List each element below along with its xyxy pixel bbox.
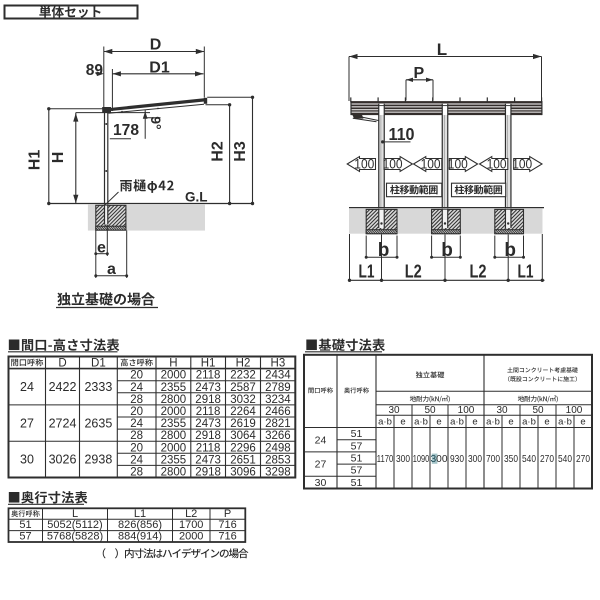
svg-text:2000: 2000 (161, 406, 187, 418)
svg-text:3026: 3026 (49, 453, 77, 467)
svg-text:2619: 2619 (230, 418, 256, 430)
svg-text:30: 30 (315, 477, 327, 489)
svg-text:e: e (436, 417, 441, 428)
svg-text:2800: 2800 (161, 430, 187, 442)
svg-text:2724: 2724 (49, 416, 77, 430)
svg-text:700: 700 (486, 453, 500, 465)
svg-text:28: 28 (130, 430, 143, 442)
svg-text:9°: 9° (148, 116, 164, 129)
svg-text:2473: 2473 (195, 418, 221, 430)
svg-text:350: 350 (504, 453, 518, 465)
svg-text:1090: 1090 (413, 453, 430, 465)
svg-text:P: P (413, 65, 424, 82)
svg-text:24: 24 (130, 382, 143, 394)
svg-text:2918: 2918 (195, 394, 221, 406)
svg-text:27: 27 (20, 416, 34, 430)
svg-text:3234: 3234 (265, 394, 291, 406)
svg-text:L: L (437, 40, 447, 59)
svg-text:100: 100 (383, 156, 403, 171)
svg-text:2800: 2800 (161, 466, 187, 478)
svg-text:57: 57 (351, 465, 363, 477)
svg-text:D: D (150, 36, 162, 53)
svg-text:2000: 2000 (161, 442, 187, 454)
svg-text:2000: 2000 (179, 530, 203, 542)
svg-text:a: a (107, 261, 116, 278)
svg-text:2355: 2355 (161, 454, 187, 466)
svg-text:24: 24 (315, 434, 327, 446)
svg-text:100: 100 (487, 156, 507, 171)
svg-text:20: 20 (130, 406, 143, 418)
svg-text:716: 716 (218, 519, 236, 531)
svg-text:51: 51 (351, 477, 363, 489)
svg-text:2587: 2587 (230, 382, 256, 394)
svg-text:2466: 2466 (265, 406, 291, 418)
svg-text:930: 930 (450, 453, 464, 465)
svg-text:3096: 3096 (230, 466, 256, 478)
svg-text:1170: 1170 (377, 453, 394, 465)
svg-text:2635: 2635 (84, 416, 112, 430)
svg-text:57: 57 (19, 530, 31, 542)
svg-text:2789: 2789 (265, 382, 291, 394)
svg-text:57: 57 (351, 440, 363, 452)
svg-text:2333: 2333 (84, 380, 112, 394)
svg-text:H3: H3 (232, 141, 249, 162)
svg-text:a·b: a·b (486, 417, 500, 428)
svg-text:3032: 3032 (230, 394, 256, 406)
svg-text:3298: 3298 (265, 466, 291, 478)
svg-text:L2: L2 (405, 262, 422, 282)
svg-text:H3: H3 (271, 357, 286, 369)
svg-text:1700: 1700 (179, 519, 203, 531)
svg-text:e: e (544, 417, 549, 428)
svg-text:D1: D1 (149, 60, 170, 77)
svg-text:2355: 2355 (161, 418, 187, 430)
svg-text:2651: 2651 (230, 454, 256, 466)
svg-text:2118: 2118 (196, 406, 221, 418)
svg-text:300: 300 (468, 453, 482, 465)
svg-text:H2: H2 (209, 141, 226, 162)
svg-text:50: 50 (424, 405, 436, 416)
svg-text:100: 100 (421, 156, 441, 171)
svg-text:2853: 2853 (265, 454, 291, 466)
svg-text:b: b (504, 240, 516, 261)
svg-text:30: 30 (20, 453, 34, 467)
svg-text:2498: 2498 (265, 442, 291, 454)
svg-text:2800: 2800 (161, 394, 187, 406)
svg-text:L2: L2 (470, 262, 487, 282)
svg-text:24: 24 (130, 454, 143, 466)
svg-text:2938: 2938 (84, 453, 112, 467)
svg-text:24: 24 (20, 380, 34, 394)
svg-text:51: 51 (351, 453, 363, 465)
svg-text:2918: 2918 (195, 466, 221, 478)
svg-text:27: 27 (315, 459, 327, 471)
svg-text:100: 100 (448, 156, 468, 171)
svg-text:e: e (472, 417, 477, 428)
svg-text:b: b (441, 240, 453, 261)
svg-text:100: 100 (458, 405, 475, 416)
svg-text:100: 100 (512, 156, 532, 171)
svg-text:28: 28 (130, 394, 143, 406)
svg-text:a·b: a·b (522, 417, 536, 428)
svg-text:L1: L1 (359, 262, 375, 282)
svg-text:884(914): 884(914) (118, 530, 162, 542)
svg-text:30: 30 (496, 405, 508, 416)
svg-text:100: 100 (354, 156, 374, 171)
svg-text:540: 540 (522, 453, 536, 465)
svg-text:5768(5828): 5768(5828) (47, 530, 103, 542)
svg-text:270: 270 (540, 453, 554, 465)
svg-text:110: 110 (389, 124, 415, 144)
svg-text:300: 300 (431, 453, 448, 465)
svg-text:51: 51 (19, 519, 31, 531)
svg-text:2118: 2118 (196, 370, 221, 382)
svg-text:2118: 2118 (196, 442, 221, 454)
svg-text:D1: D1 (91, 357, 106, 369)
svg-text:716: 716 (218, 530, 236, 542)
svg-text:L1: L1 (518, 262, 534, 282)
svg-text:826(856): 826(856) (118, 519, 162, 531)
svg-text:D: D (58, 357, 66, 369)
svg-text:a·b: a·b (414, 417, 428, 428)
svg-text:H: H (50, 152, 67, 164)
svg-text:G.L: G.L (185, 189, 208, 204)
svg-text:e: e (580, 417, 585, 428)
svg-text:a·b: a·b (378, 417, 392, 428)
svg-text:2232: 2232 (230, 370, 256, 382)
svg-text:89: 89 (86, 62, 104, 79)
svg-text:2821: 2821 (265, 418, 291, 430)
svg-text:a·b: a·b (450, 417, 464, 428)
svg-text:2473: 2473 (195, 382, 221, 394)
svg-text:2422: 2422 (49, 380, 77, 394)
svg-text:24: 24 (130, 418, 143, 430)
svg-text:51: 51 (351, 428, 363, 440)
svg-text:b: b (378, 240, 390, 261)
svg-text:5052(5112): 5052(5112) (47, 519, 102, 531)
svg-text:20: 20 (130, 370, 143, 382)
svg-text:20: 20 (130, 442, 143, 454)
svg-text:178: 178 (113, 122, 139, 139)
svg-text:28: 28 (130, 466, 143, 478)
svg-text:50: 50 (532, 405, 544, 416)
svg-text:e: e (508, 417, 513, 428)
svg-text:3266: 3266 (265, 430, 291, 442)
svg-text:H: H (169, 357, 177, 369)
svg-text:270: 270 (576, 453, 590, 465)
svg-text:2473: 2473 (195, 454, 221, 466)
svg-text:a·b: a·b (558, 417, 572, 428)
svg-text:2355: 2355 (161, 382, 187, 394)
svg-text:H1: H1 (27, 150, 44, 171)
svg-text:100: 100 (566, 405, 583, 416)
svg-text:H2: H2 (236, 357, 251, 369)
svg-text:e: e (97, 239, 106, 256)
svg-text:2918: 2918 (195, 430, 221, 442)
svg-text:540: 540 (558, 453, 572, 465)
svg-text:3064: 3064 (230, 430, 256, 442)
svg-text:2434: 2434 (265, 370, 291, 382)
svg-text:300: 300 (396, 453, 410, 465)
svg-text:e: e (400, 417, 405, 428)
svg-text:H1: H1 (201, 357, 216, 369)
svg-text:2000: 2000 (161, 370, 187, 382)
svg-text:30: 30 (388, 405, 400, 416)
svg-text:2296: 2296 (230, 442, 256, 454)
svg-text:2264: 2264 (230, 406, 256, 418)
